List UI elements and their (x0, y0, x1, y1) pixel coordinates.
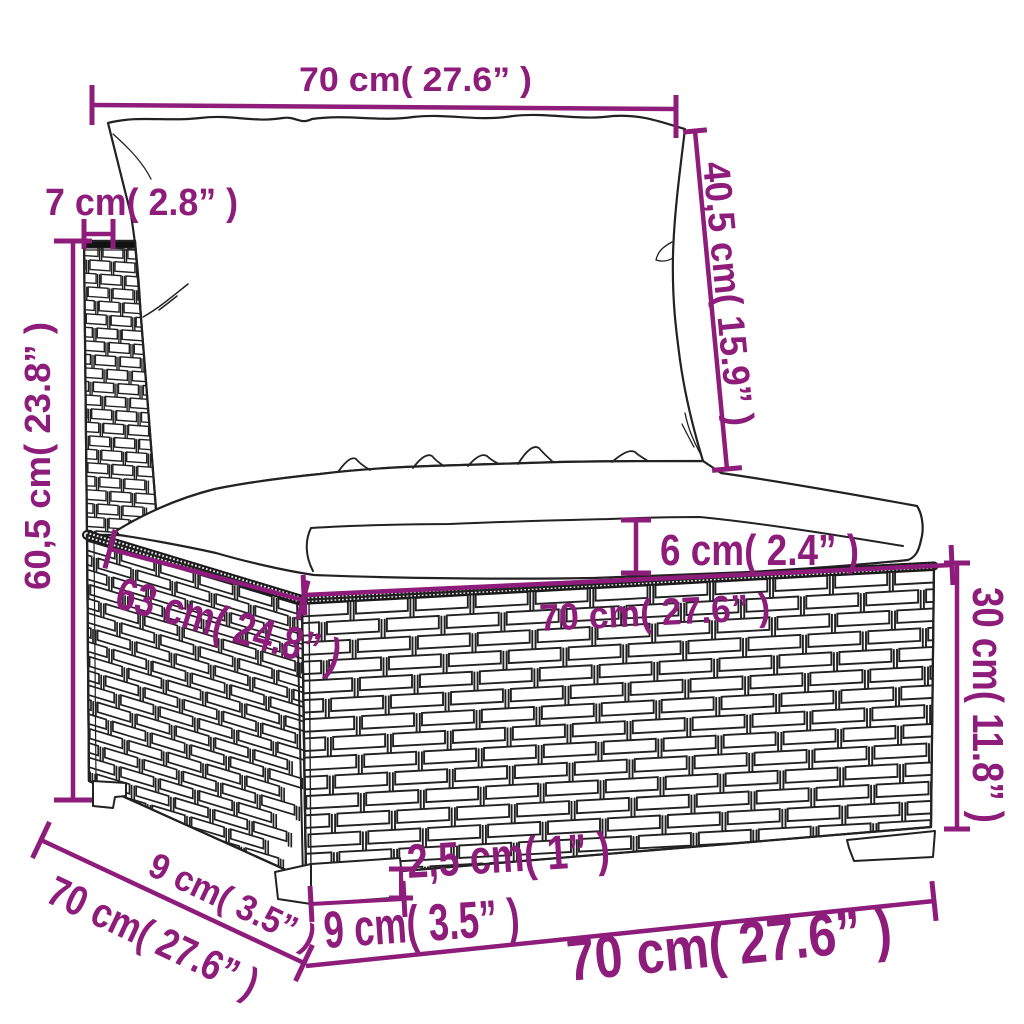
svg-text:7 cm( 2.8” ): 7 cm( 2.8” ) (45, 182, 238, 224)
svg-text:70 cm( 27.6” ): 70 cm( 27.6” ) (299, 61, 532, 99)
svg-text:30 cm( 11.8” ): 30 cm( 11.8” ) (963, 587, 1012, 823)
svg-text:60,5 cm( 23.8” ): 60,5 cm( 23.8” ) (17, 322, 58, 590)
svg-text:6 cm( 2.4” ): 6 cm( 2.4” ) (660, 526, 859, 575)
